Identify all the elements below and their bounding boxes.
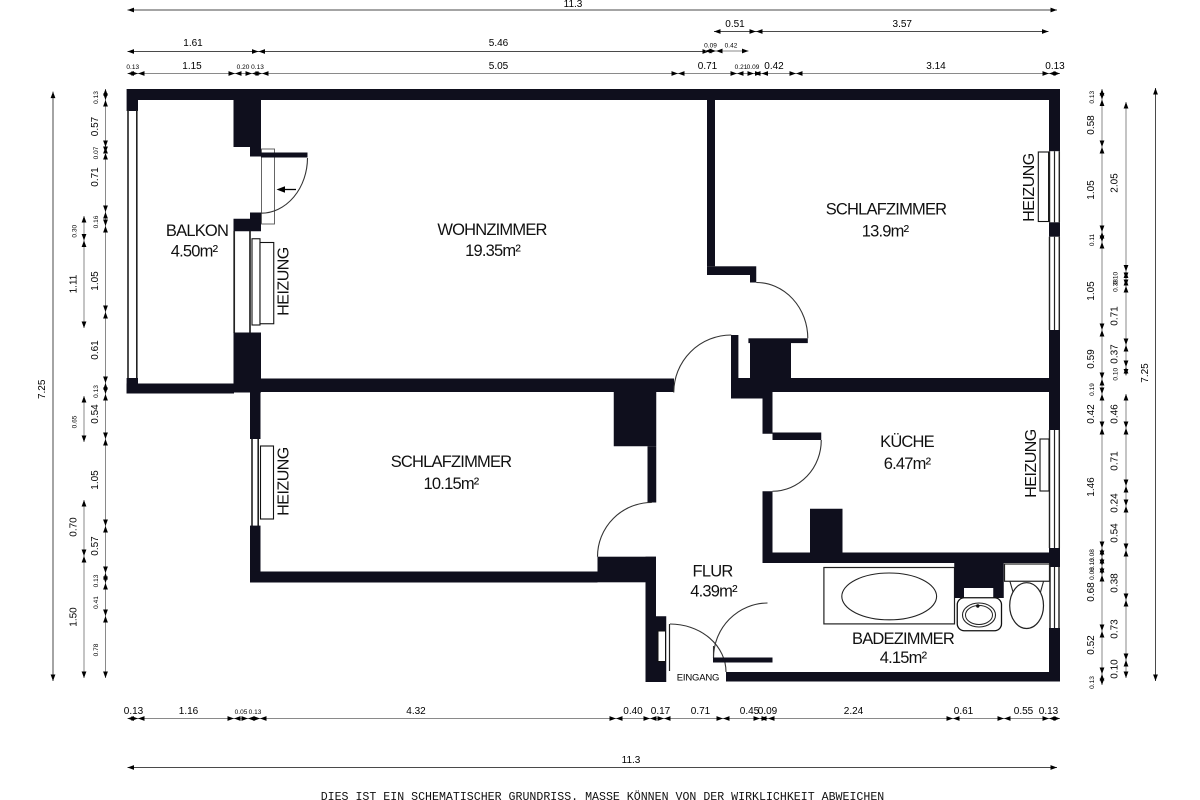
svg-text:5.46: 5.46 xyxy=(489,38,509,49)
svg-text:4.39m²: 4.39m² xyxy=(690,583,738,601)
svg-text:0.71: 0.71 xyxy=(698,61,718,72)
svg-text:0.13: 0.13 xyxy=(1039,706,1059,717)
svg-text:6.47m²: 6.47m² xyxy=(884,455,932,473)
svg-text:11.3: 11.3 xyxy=(564,0,583,10)
svg-text:2.24: 2.24 xyxy=(844,706,864,717)
svg-text:0.24: 0.24 xyxy=(1110,493,1121,513)
svg-text:13.9m²: 13.9m² xyxy=(862,223,910,241)
svg-text:3.57: 3.57 xyxy=(893,19,913,30)
svg-text:0.78: 0.78 xyxy=(93,643,100,656)
svg-text:0.61: 0.61 xyxy=(90,340,101,360)
svg-text:1.05: 1.05 xyxy=(90,271,101,291)
svg-text:0.61: 0.61 xyxy=(954,706,974,717)
svg-text:DIES IST EIN SCHEMATISCHER GRU: DIES IST EIN SCHEMATISCHER GRUNDRISS. MA… xyxy=(321,791,885,800)
svg-text:0.71: 0.71 xyxy=(691,706,711,717)
svg-text:0.13: 0.13 xyxy=(93,574,100,587)
svg-text:0.59: 0.59 xyxy=(1086,349,1097,369)
svg-text:0.17: 0.17 xyxy=(651,706,671,717)
svg-text:0.58: 0.58 xyxy=(1086,115,1097,135)
svg-text:0.19: 0.19 xyxy=(1089,383,1096,396)
svg-text:0.40: 0.40 xyxy=(623,706,643,717)
svg-text:0.13: 0.13 xyxy=(1089,676,1096,689)
svg-text:0.10: 0.10 xyxy=(1110,659,1121,679)
svg-text:4.15m²: 4.15m² xyxy=(880,649,928,667)
svg-text:0.41: 0.41 xyxy=(93,596,100,609)
svg-text:11.3: 11.3 xyxy=(622,755,641,766)
svg-text:0.68: 0.68 xyxy=(1086,582,1097,602)
svg-text:7.25: 7.25 xyxy=(1140,363,1151,383)
svg-text:0.42: 0.42 xyxy=(1086,404,1097,424)
svg-text:0.07: 0.07 xyxy=(93,146,100,159)
svg-text:0.16: 0.16 xyxy=(93,215,100,228)
svg-text:0.09: 0.09 xyxy=(704,43,717,50)
svg-text:0.57: 0.57 xyxy=(90,536,101,556)
svg-text:1.05: 1.05 xyxy=(90,470,101,490)
svg-text:0.71: 0.71 xyxy=(90,167,101,187)
svg-text:0.54: 0.54 xyxy=(90,404,101,424)
svg-text:0.13: 0.13 xyxy=(249,709,262,716)
svg-text:0.55: 0.55 xyxy=(1014,706,1034,717)
svg-text:BALKON: BALKON xyxy=(166,222,228,240)
svg-text:3.14: 3.14 xyxy=(926,61,946,72)
svg-text:0.65: 0.65 xyxy=(72,415,79,428)
svg-text:1.05: 1.05 xyxy=(1086,180,1097,200)
svg-text:HEIZUNG: HEIZUNG xyxy=(276,247,293,316)
svg-text:0.42: 0.42 xyxy=(764,61,784,72)
svg-text:0.13: 0.13 xyxy=(93,385,100,398)
svg-text:19.35m²: 19.35m² xyxy=(465,242,521,260)
svg-text:KÜCHE: KÜCHE xyxy=(880,433,935,451)
svg-text:0.10: 0.10 xyxy=(1113,368,1120,381)
svg-text:0.57: 0.57 xyxy=(90,116,101,136)
svg-text:0.51: 0.51 xyxy=(725,19,745,30)
svg-text:0.73: 0.73 xyxy=(1110,619,1121,639)
svg-text:0.71: 0.71 xyxy=(1110,451,1121,471)
svg-text:4.50m²: 4.50m² xyxy=(171,243,219,261)
svg-text:1.15: 1.15 xyxy=(182,61,202,72)
svg-text:0.11: 0.11 xyxy=(1089,234,1096,247)
svg-text:SCHLAFZIMMER: SCHLAFZIMMER xyxy=(391,453,512,471)
svg-text:5.05: 5.05 xyxy=(489,61,509,72)
svg-text:0.13: 0.13 xyxy=(1045,61,1065,72)
svg-text:1.16: 1.16 xyxy=(179,706,199,717)
svg-text:0.38: 0.38 xyxy=(1110,573,1121,593)
svg-text:1.05: 1.05 xyxy=(1086,281,1097,301)
svg-text:0.54: 0.54 xyxy=(1110,523,1121,543)
svg-text:0.46: 0.46 xyxy=(1110,404,1121,424)
svg-text:0.13: 0.13 xyxy=(1089,91,1096,104)
svg-text:0.52: 0.52 xyxy=(1086,635,1097,655)
svg-text:7.25: 7.25 xyxy=(37,379,48,399)
svg-text:FLUR: FLUR xyxy=(693,563,734,581)
svg-text:0.37: 0.37 xyxy=(1110,344,1121,364)
svg-text:0.45: 0.45 xyxy=(740,706,760,717)
svg-text:0.09: 0.09 xyxy=(758,706,778,717)
svg-text:0.20: 0.20 xyxy=(237,64,250,71)
svg-text:0.08: 0.08 xyxy=(1089,567,1096,580)
svg-text:2.05: 2.05 xyxy=(1110,173,1121,193)
svg-text:HEIZUNG: HEIZUNG xyxy=(1021,153,1038,222)
svg-text:WOHNZIMMER: WOHNZIMMER xyxy=(437,221,547,239)
svg-text:0.09: 0.09 xyxy=(747,64,760,71)
svg-text:0.13: 0.13 xyxy=(251,64,264,71)
svg-text:0.42: 0.42 xyxy=(725,43,738,50)
svg-text:0.13: 0.13 xyxy=(126,64,139,71)
svg-text:0.13: 0.13 xyxy=(93,91,100,104)
svg-text:HEIZUNG: HEIZUNG xyxy=(1023,429,1040,498)
svg-text:0.70: 0.70 xyxy=(69,517,80,537)
svg-text:BADEZIMMER: BADEZIMMER xyxy=(852,630,955,648)
svg-text:1.50: 1.50 xyxy=(69,607,80,627)
svg-text:EINGANG: EINGANG xyxy=(677,673,719,684)
svg-text:4.32: 4.32 xyxy=(406,706,426,717)
svg-text:1.61: 1.61 xyxy=(183,38,203,49)
svg-text:HEIZUNG: HEIZUNG xyxy=(276,447,293,516)
svg-text:0.05: 0.05 xyxy=(235,709,248,716)
svg-text:10.15m²: 10.15m² xyxy=(424,475,480,493)
svg-text:0.38: 0.38 xyxy=(1113,279,1120,292)
svg-text:0.71: 0.71 xyxy=(1110,306,1121,326)
svg-text:0.13: 0.13 xyxy=(124,706,144,717)
svg-text:0.30: 0.30 xyxy=(72,225,79,238)
svg-text:1.11: 1.11 xyxy=(69,274,80,293)
svg-text:1.46: 1.46 xyxy=(1086,477,1097,497)
svg-text:SCHLAFZIMMER: SCHLAFZIMMER xyxy=(826,201,947,219)
